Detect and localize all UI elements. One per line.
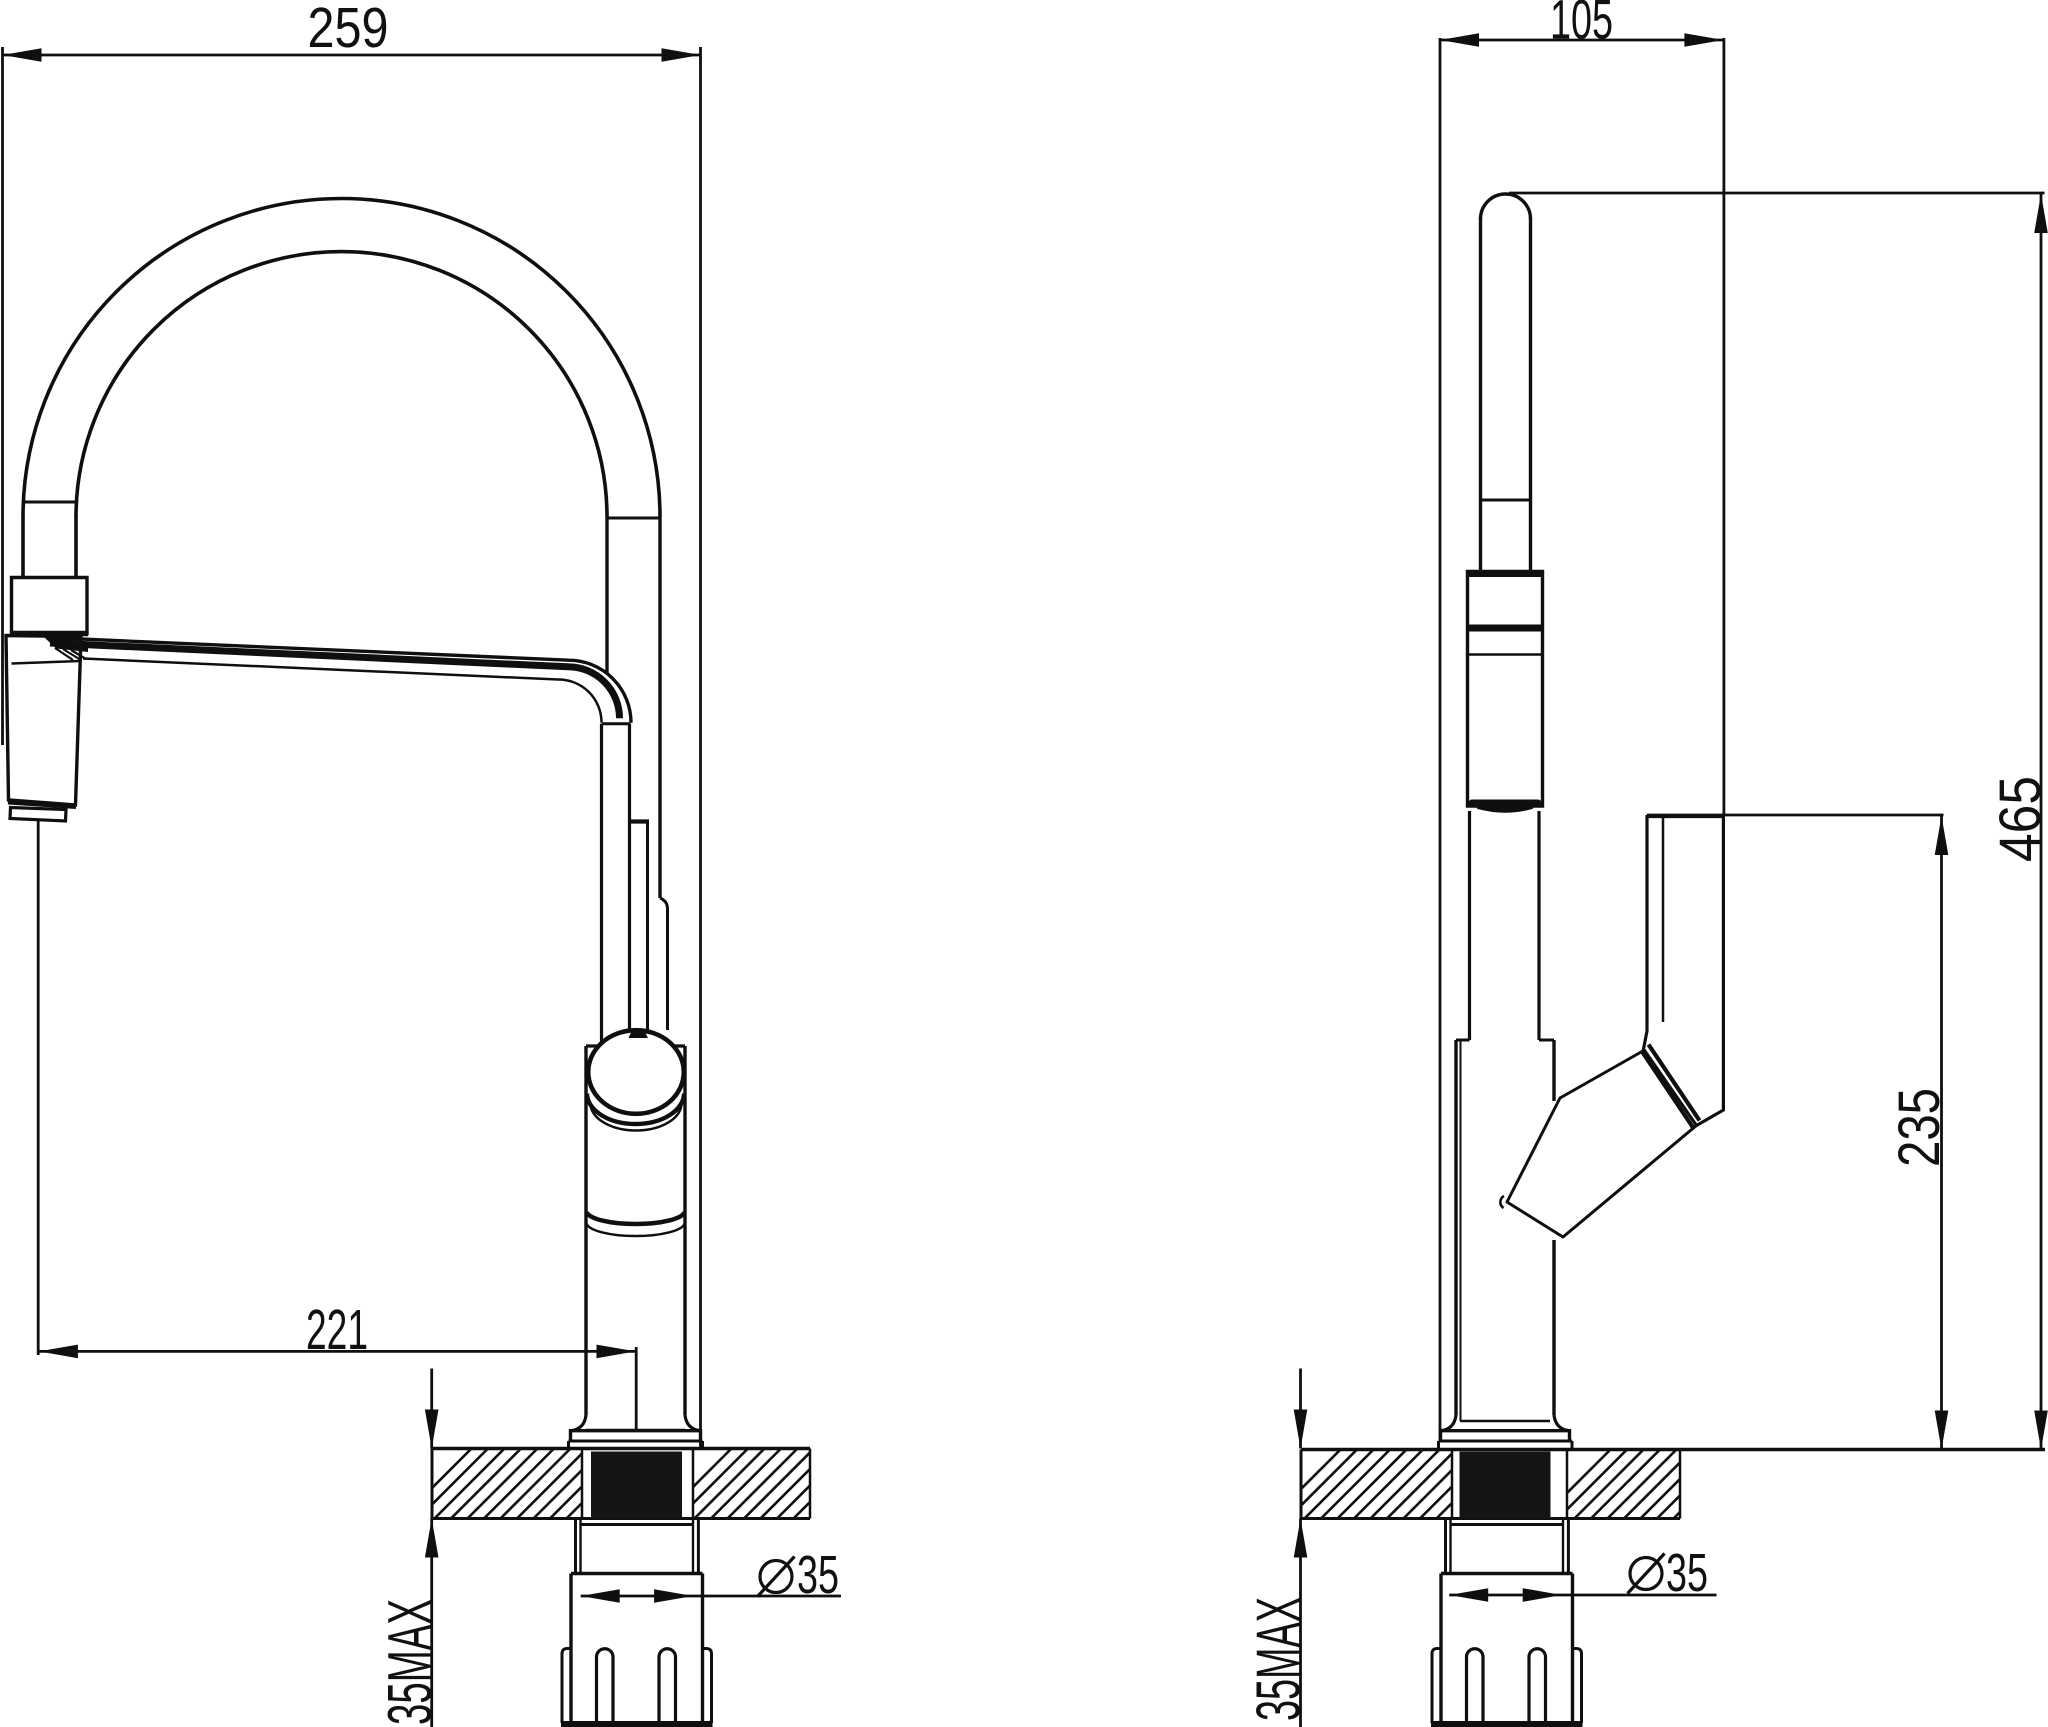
svg-text:259: 259	[308, 0, 389, 60]
svg-text:35MAX: 35MAX	[1245, 1597, 1314, 1721]
svg-text:235: 235	[1887, 1088, 1952, 1167]
svg-text:35MAX: 35MAX	[376, 1599, 445, 1725]
svg-text:465: 465	[1988, 776, 2048, 862]
svg-text:105: 105	[1550, 0, 1613, 51]
svg-text:35: 35	[1666, 1543, 1708, 1603]
svg-text:35: 35	[797, 1545, 839, 1605]
